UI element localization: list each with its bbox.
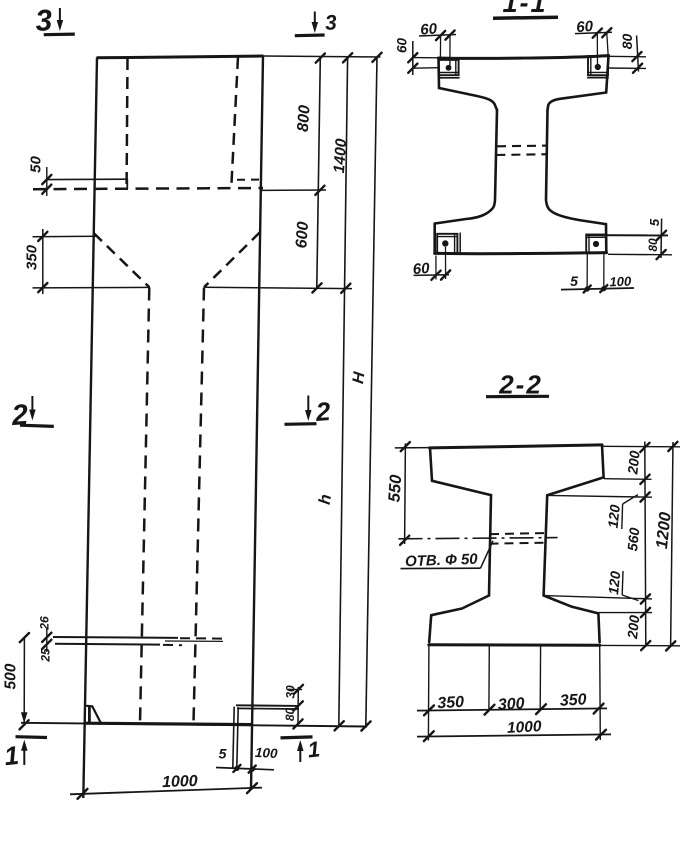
svg-text:50: 50: [27, 156, 44, 173]
svg-text:2: 2: [314, 396, 332, 427]
svg-text:200: 200: [624, 450, 642, 476]
svg-text:350: 350: [23, 244, 40, 270]
svg-text:25: 25: [39, 648, 53, 663]
svg-text:80: 80: [646, 238, 660, 252]
svg-text:200: 200: [624, 614, 642, 640]
svg-text:2: 2: [10, 399, 29, 432]
svg-text:3: 3: [324, 11, 338, 35]
svg-text:120: 120: [605, 504, 623, 529]
svg-text:80: 80: [283, 708, 297, 722]
svg-text:1000: 1000: [507, 718, 543, 737]
svg-text:550: 550: [385, 473, 405, 503]
svg-text:300: 300: [497, 695, 525, 713]
svg-text:5: 5: [570, 273, 578, 289]
svg-text:350: 350: [437, 694, 465, 712]
svg-text:560: 560: [624, 527, 642, 552]
svg-text:350: 350: [559, 691, 587, 709]
svg-text:30: 30: [284, 685, 298, 699]
svg-text:600: 600: [293, 221, 312, 249]
svg-text:60: 60: [394, 38, 409, 54]
svg-text:100: 100: [255, 745, 279, 761]
svg-text:26: 26: [38, 616, 52, 631]
svg-text:5: 5: [647, 218, 662, 226]
svg-text:100: 100: [609, 274, 632, 290]
svg-text:ОТВ. Ф 50: ОТВ. Ф 50: [405, 551, 479, 571]
svg-text:500: 500: [3, 663, 20, 689]
svg-text:5: 5: [219, 746, 227, 762]
svg-text:1400: 1400: [331, 138, 350, 174]
svg-text:1: 1: [306, 736, 321, 762]
svg-text:120: 120: [605, 570, 623, 595]
svg-text:80: 80: [619, 34, 635, 50]
svg-text:3: 3: [34, 4, 53, 38]
svg-text:1000: 1000: [162, 773, 198, 791]
svg-text:800: 800: [295, 104, 314, 132]
svg-text:1-1: 1-1: [502, 0, 547, 18]
